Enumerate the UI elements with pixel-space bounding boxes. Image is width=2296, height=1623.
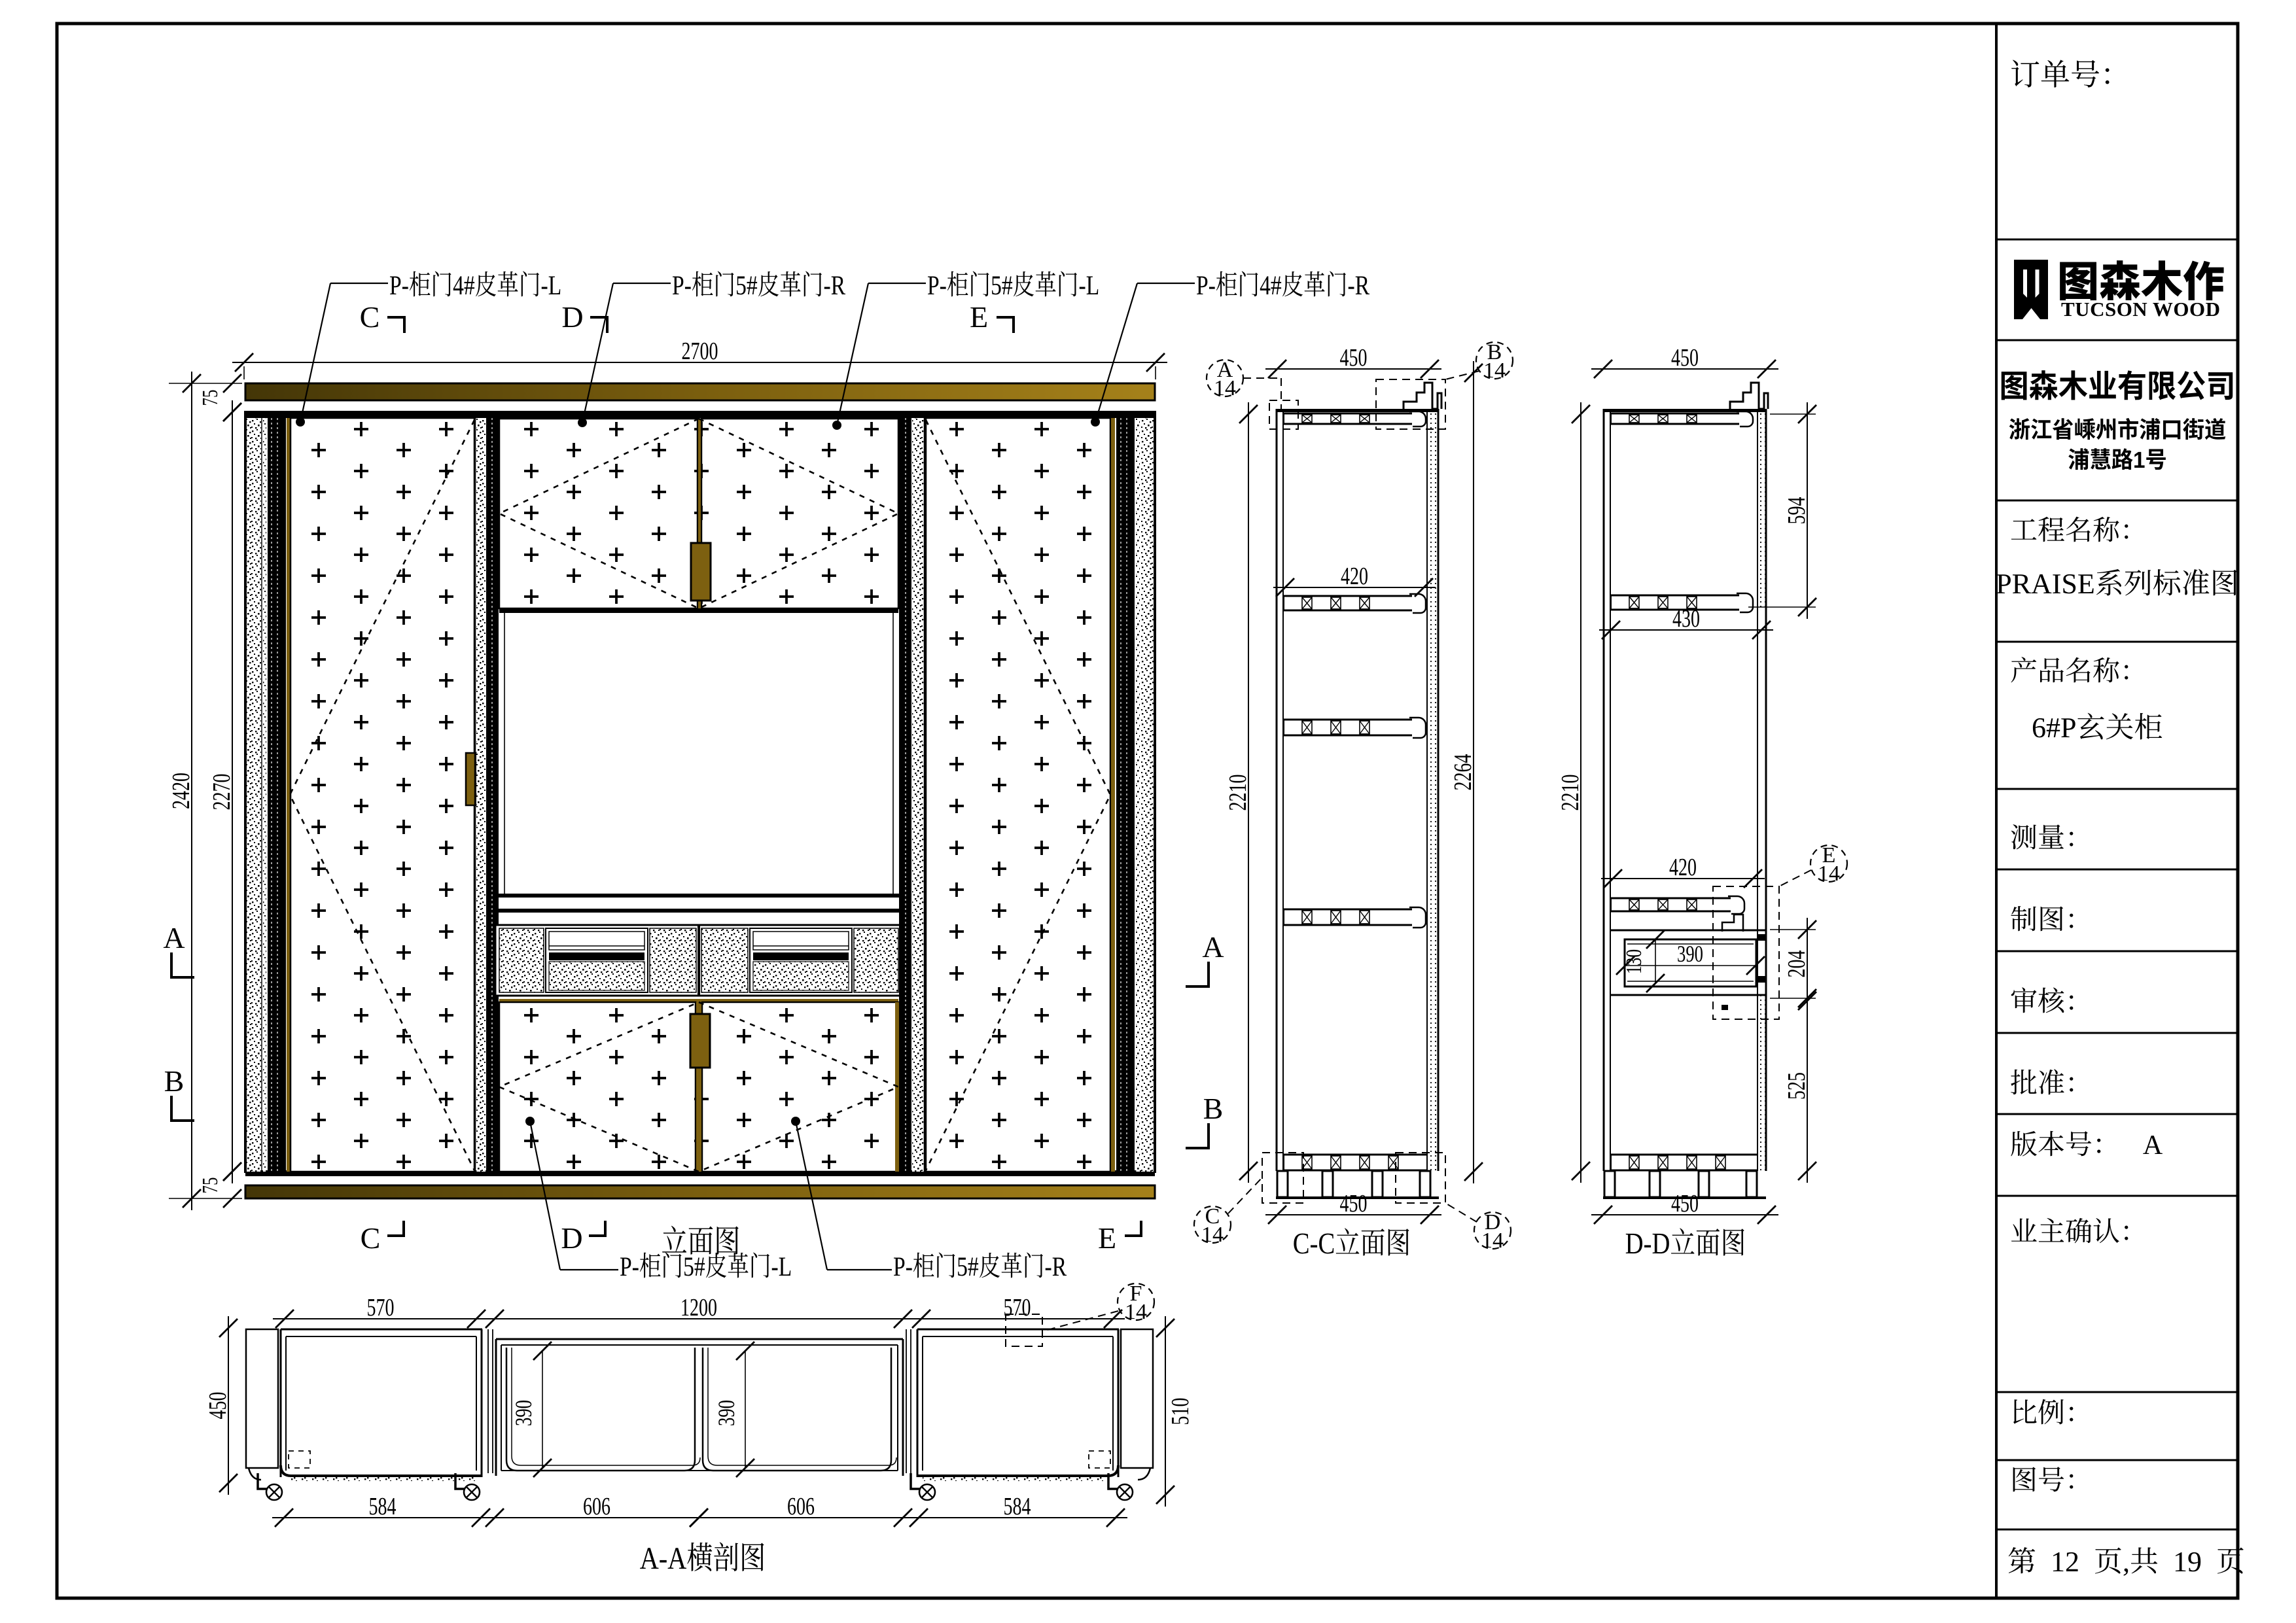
svg-text:TUCSON WOOD: TUCSON WOOD [2061,298,2221,321]
svg-text:14: 14 [1483,358,1506,383]
svg-text:130: 130 [1622,949,1646,974]
svg-text:2700: 2700 [682,338,718,365]
svg-text:570: 570 [367,1294,395,1321]
svg-text:E: E [1098,1221,1116,1255]
svg-text:75: 75 [198,1178,222,1194]
svg-text:E: E [970,300,988,334]
svg-text:C: C [360,300,380,334]
svg-text:2420: 2420 [168,773,195,809]
svg-text:420: 420 [1669,854,1697,881]
svg-text:390: 390 [1677,941,1703,967]
svg-text:A: A [2143,1130,2163,1161]
svg-text:14: 14 [1201,1223,1224,1247]
svg-text:14: 14 [1125,1300,1147,1324]
svg-text:14: 14 [1818,862,1840,886]
svg-text:D: D [561,1221,582,1255]
svg-text:450: 450 [1340,1190,1368,1217]
svg-text:2210: 2210 [1224,775,1252,811]
svg-text:584: 584 [369,1493,397,1520]
svg-text:450: 450 [204,1392,232,1420]
svg-text:510: 510 [1167,1398,1194,1425]
svg-text:2270: 2270 [208,774,236,811]
svg-text:B: B [164,1064,185,1098]
svg-text:594: 594 [1783,497,1810,525]
svg-text:1200: 1200 [680,1294,717,1321]
svg-text:B: B [1203,1092,1224,1125]
svg-text:D: D [561,300,583,334]
svg-text:204: 204 [1783,951,1810,978]
svg-text:420: 420 [1341,563,1368,590]
svg-text:14: 14 [1214,376,1236,400]
svg-text:584: 584 [1004,1493,1031,1520]
svg-text:2210: 2210 [1557,775,1584,811]
svg-text:570: 570 [1004,1294,1031,1321]
svg-text:2264: 2264 [1449,754,1477,791]
svg-text:430: 430 [1672,605,1700,633]
svg-text:606: 606 [583,1493,610,1520]
svg-text:390: 390 [510,1400,537,1426]
svg-text:C: C [361,1221,381,1255]
svg-text:14: 14 [1481,1229,1504,1253]
svg-text:390: 390 [713,1400,739,1426]
svg-text:450: 450 [1671,344,1699,372]
svg-text:A: A [163,921,185,954]
svg-text:A: A [1202,930,1224,964]
svg-text:75: 75 [198,390,222,406]
svg-text:525: 525 [1783,1072,1810,1100]
svg-text:450: 450 [1671,1190,1699,1217]
svg-text:450: 450 [1340,344,1368,372]
svg-text:606: 606 [787,1493,815,1520]
